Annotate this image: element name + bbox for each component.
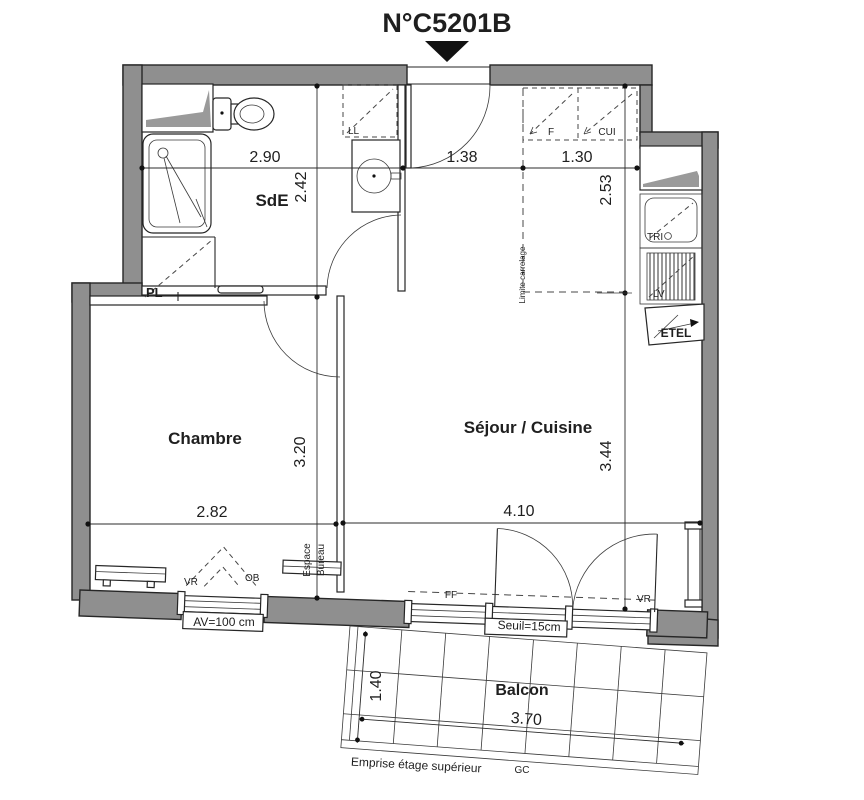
- dim-balcony-depth: 1.40: [368, 670, 385, 701]
- label-shutter-living: VR: [637, 594, 651, 605]
- dim-kitchen-depth: 2.53: [598, 174, 615, 205]
- room-label-bathroom: SdE: [255, 191, 288, 210]
- balcony-structure: [341, 626, 707, 774]
- dishwasher: [640, 248, 702, 304]
- room-label-living: Séjour / Cuisine: [464, 418, 592, 437]
- dim-balcony-width: 3.70: [510, 710, 542, 729]
- east-window: [685, 522, 702, 607]
- label-gc: GC: [515, 765, 530, 776]
- floor-plan-page: N°C5201B: [0, 0, 864, 800]
- dim-bedroom-depth: 3.20: [292, 436, 309, 467]
- room-label-bedroom: Chambre: [168, 429, 242, 448]
- dim-kitchen-width: 1.30: [561, 149, 592, 166]
- doors: [264, 67, 490, 377]
- bathroom-door-arc: [327, 215, 401, 288]
- washbasin: [352, 140, 401, 212]
- label-electrical-box: ETEL: [661, 326, 692, 340]
- label-washing-machine: LL: [348, 126, 360, 137]
- label-kitchen-unit: CUI: [598, 127, 615, 138]
- dim-bedroom-width: 2.82: [196, 504, 227, 521]
- dim-living-width: 4.10: [503, 503, 534, 520]
- label-dishwasher: LV: [653, 289, 665, 300]
- towel-rail: [218, 286, 263, 293]
- room-label-balcony: Balcon: [495, 682, 548, 699]
- label-desk-area-1: Espace: [302, 543, 313, 577]
- label-threshold: Seuil=15cm: [497, 618, 560, 634]
- label-sill-height: AV=100 cm: [193, 615, 254, 629]
- entrance-door-leaf: [406, 85, 411, 168]
- shower-tray: [143, 134, 211, 233]
- dim-living-depth: 3.44: [598, 440, 615, 471]
- floor-plan-svg: N°C5201B: [0, 0, 864, 800]
- label-tile-limit: Limite carrelage: [518, 246, 527, 303]
- label-fixed-pane: FF: [445, 590, 457, 601]
- radiator: [95, 566, 166, 588]
- bedroom-door-arc: [264, 301, 340, 377]
- dim-bathroom-width: 2.90: [249, 149, 280, 166]
- south-facade: [79, 514, 710, 647]
- label-closet: PL: [146, 285, 163, 300]
- label-upper-floor: Emprise étage supérieur: [351, 755, 482, 776]
- label-tilt-window: OB: [245, 573, 260, 584]
- label-shutter-bedroom: VR: [184, 577, 198, 588]
- balcony-depth-dimline: [357, 631, 365, 743]
- dim-entry-width: 1.38: [446, 149, 477, 166]
- french-doors: [495, 529, 658, 613]
- label-fridge: F: [548, 127, 554, 138]
- plan-title: N°C5201B: [382, 8, 511, 38]
- dim-bathroom-depth: 2.42: [293, 171, 310, 202]
- toilet: [213, 98, 274, 130]
- entrance-arrow-icon: [425, 41, 469, 62]
- appliance-boxes: [523, 88, 637, 140]
- label-sorting-bin: TRI: [647, 232, 663, 243]
- label-desk-area-2: Bureau: [316, 544, 327, 576]
